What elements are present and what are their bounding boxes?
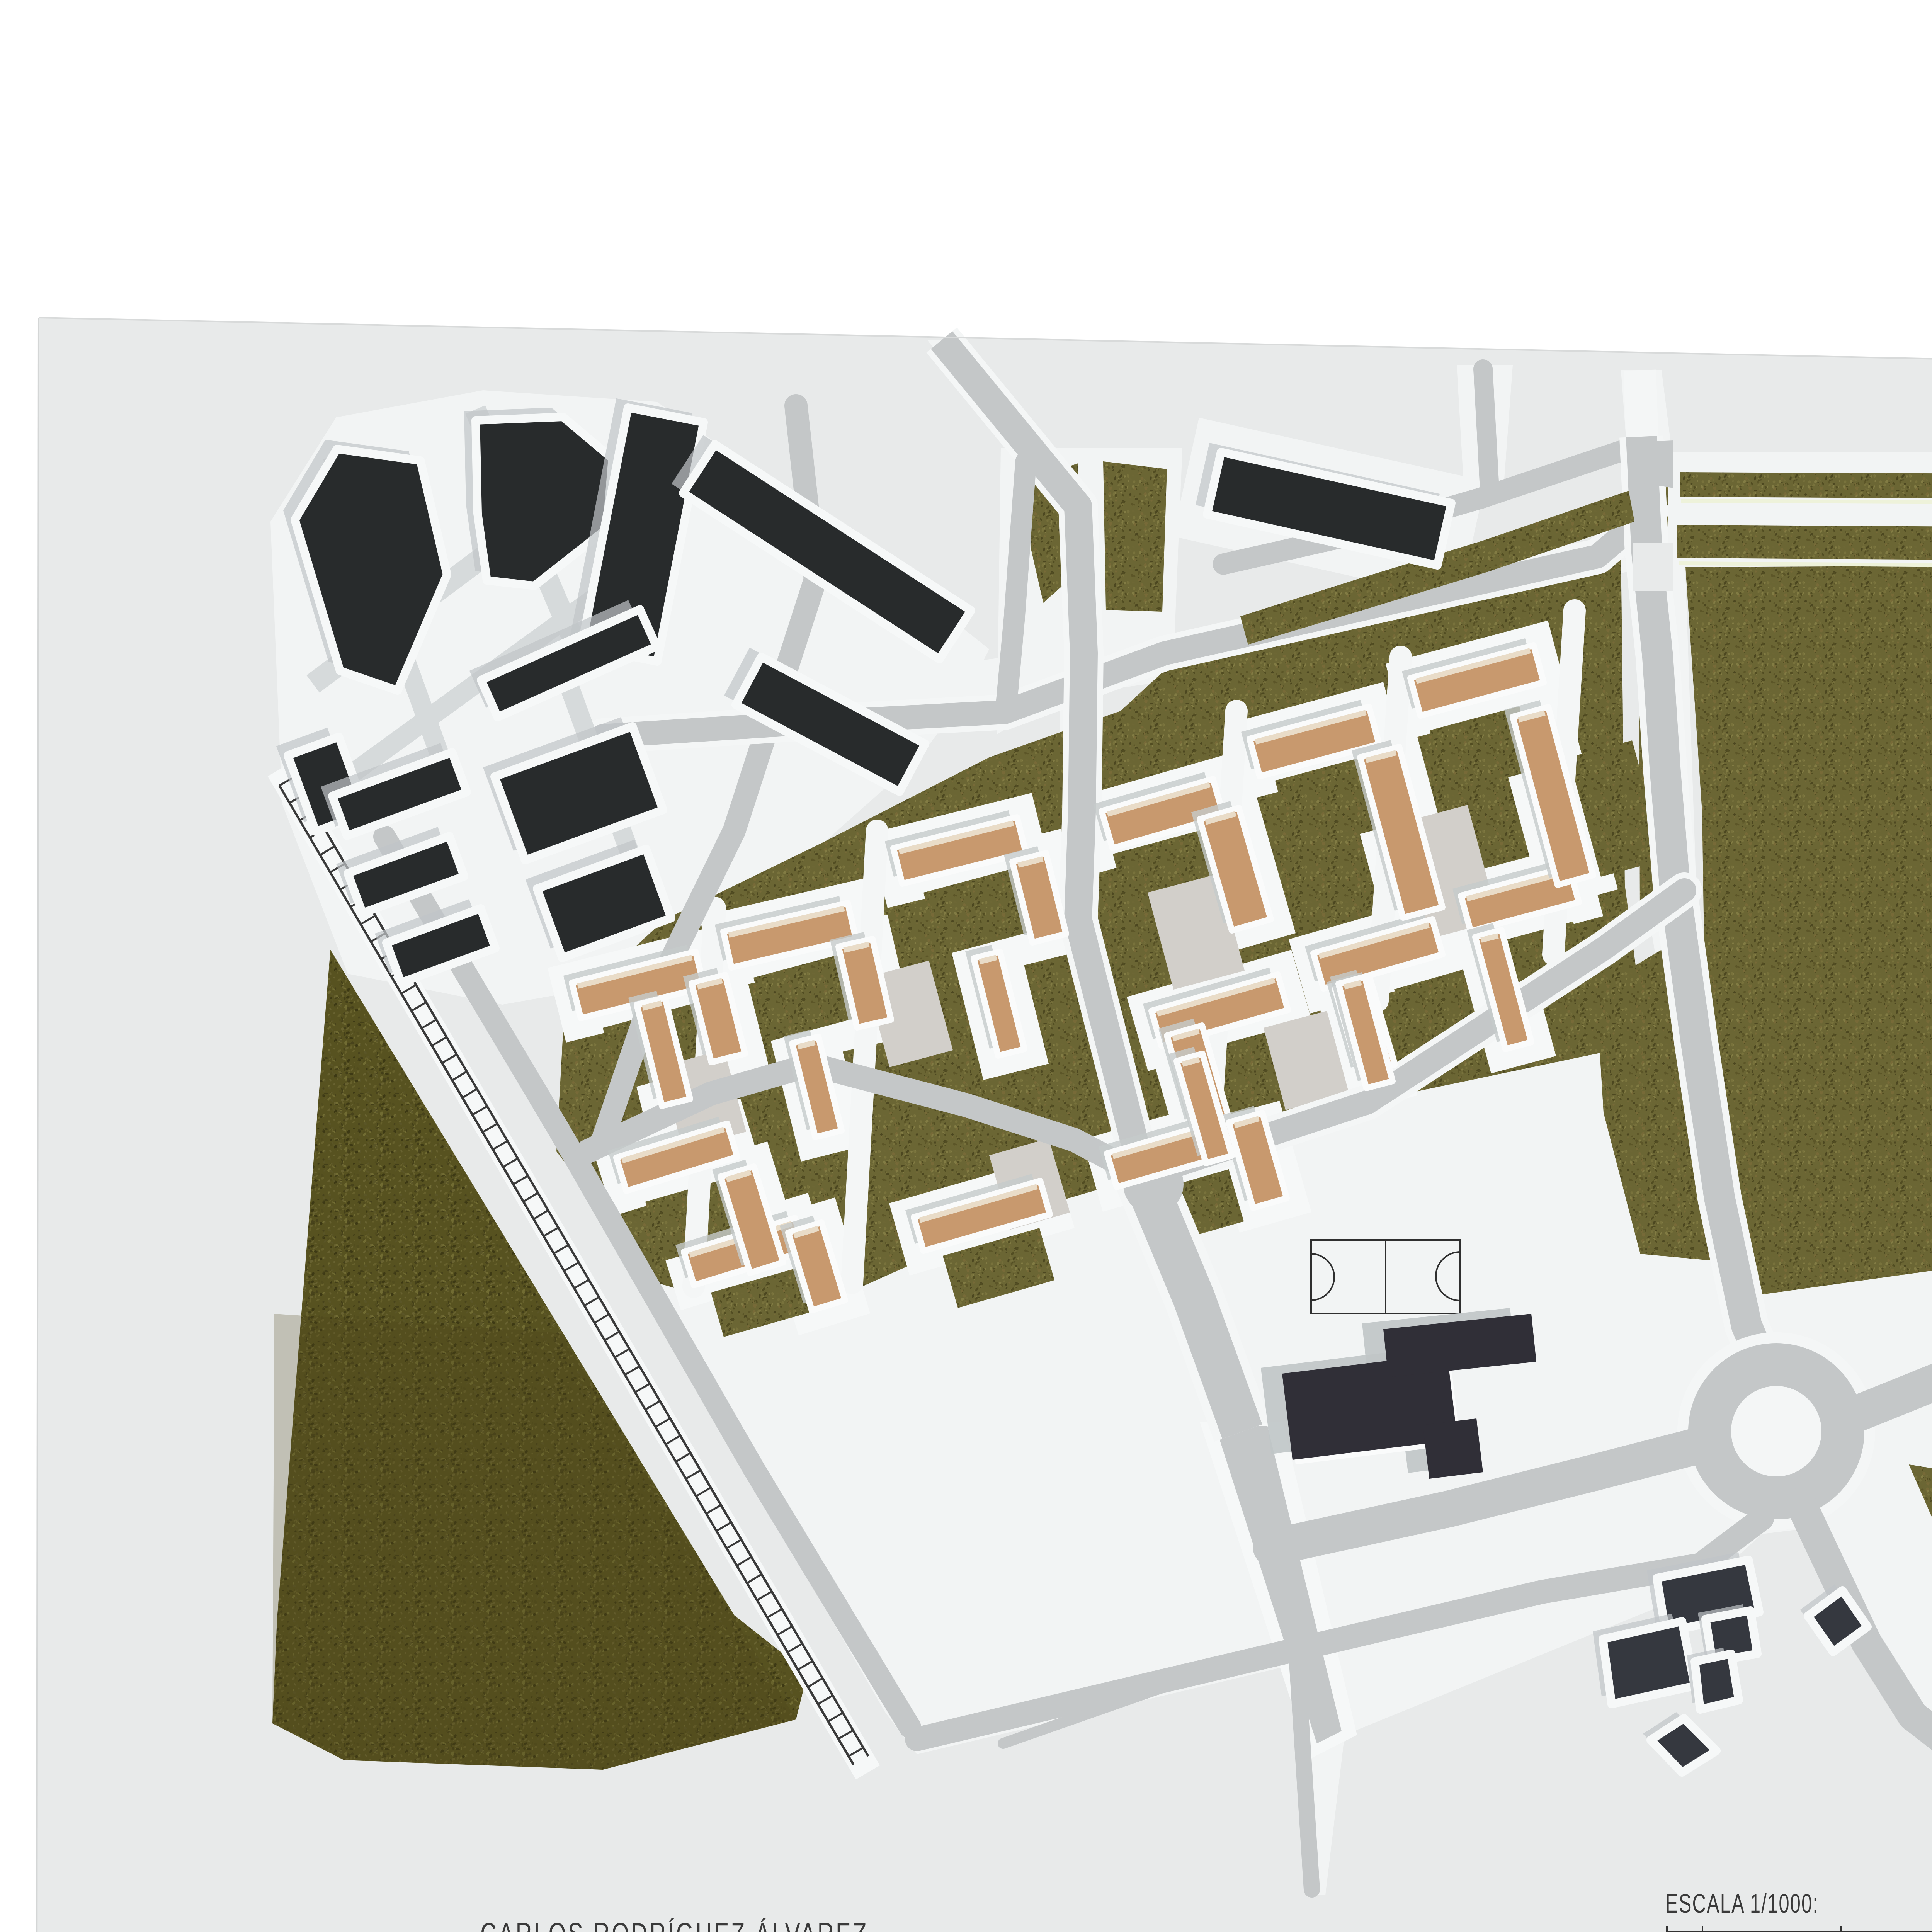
svg-text:CARLOS RODRÍGUEZ ÁLVAREZ.: CARLOS RODRÍGUEZ ÁLVAREZ.	[480, 1918, 877, 1932]
svg-text:ESCALA 1/1000:: ESCALA 1/1000:	[1665, 1888, 1819, 1918]
